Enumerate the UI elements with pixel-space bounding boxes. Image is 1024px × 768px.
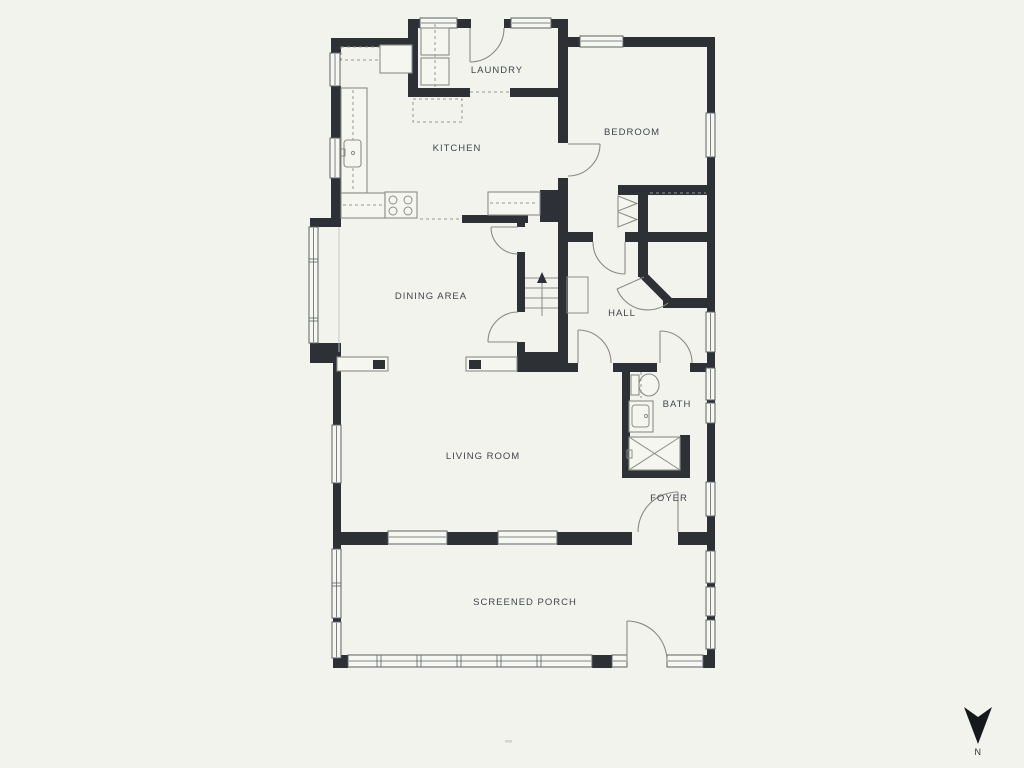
floor-plan-canvas: LAUNDRY KITCHEN BEDROOM DINING AREA HALL… xyxy=(0,0,1024,768)
room-label-hall: HALL xyxy=(608,308,636,319)
window xyxy=(330,138,340,178)
room-label-bath: BATH xyxy=(663,399,692,410)
stove xyxy=(385,192,417,218)
room-label-living-room: LIVING ROOM xyxy=(446,451,520,462)
room-label-dining-area: DINING AREA xyxy=(395,291,467,302)
porch-screen xyxy=(332,549,341,618)
porch-screen xyxy=(706,551,715,583)
porch-screen xyxy=(332,622,341,658)
window xyxy=(330,53,340,86)
stairs-up xyxy=(525,272,558,316)
bedroom-door xyxy=(568,144,600,176)
hall-chase xyxy=(567,277,588,313)
toilet xyxy=(631,372,659,398)
kitchen-counter-north xyxy=(413,99,462,122)
laundry-exterior-door xyxy=(470,28,504,62)
porch-screen xyxy=(706,587,715,616)
kitchen-sink xyxy=(341,140,361,167)
diagonal-closet-wall xyxy=(642,274,670,302)
room-label-laundry: LAUNDRY xyxy=(471,65,523,76)
window xyxy=(511,18,551,28)
porch-screen xyxy=(706,620,715,649)
walls xyxy=(310,19,715,668)
window xyxy=(420,18,457,28)
window xyxy=(580,36,623,47)
half-wall-posts xyxy=(337,357,517,371)
window xyxy=(498,531,557,544)
north-label: N xyxy=(975,747,982,757)
window xyxy=(706,368,715,400)
room-label-screened-porch: SCREENED PORCH xyxy=(473,597,577,608)
window xyxy=(706,482,715,516)
room-label-foyer: FOYER xyxy=(650,493,688,504)
dining-stair-door-lower xyxy=(488,312,518,342)
window xyxy=(332,425,341,483)
corner-cabinet xyxy=(380,45,412,73)
dining-stair-door-upper xyxy=(491,227,518,254)
porch-screen xyxy=(612,655,627,667)
bay-window xyxy=(309,227,318,343)
north-arrow-icon xyxy=(964,707,992,744)
room-labels: LAUNDRY KITCHEN BEDROOM DINING AREA HALL… xyxy=(395,65,691,608)
room-label-bedroom: BEDROOM xyxy=(604,127,660,138)
hall-bath-door xyxy=(660,331,692,363)
bath-sink xyxy=(629,401,653,432)
window xyxy=(706,312,715,352)
kitchen-island xyxy=(488,192,540,215)
artifact-dash xyxy=(505,740,512,743)
hall-living-door xyxy=(578,330,611,363)
bathtub xyxy=(627,437,680,470)
room-label-kitchen: KITCHEN xyxy=(433,143,482,154)
porch-door xyxy=(627,621,667,661)
compass: N xyxy=(964,707,992,757)
window xyxy=(706,113,715,157)
closet-bifold-door xyxy=(618,196,637,227)
doors xyxy=(420,28,692,661)
window xyxy=(706,403,715,423)
porch-screen xyxy=(667,655,703,667)
bedroom-hall-door xyxy=(593,242,625,274)
window xyxy=(388,531,447,544)
kitchen-counter xyxy=(341,47,385,218)
porch-screen xyxy=(348,655,592,667)
